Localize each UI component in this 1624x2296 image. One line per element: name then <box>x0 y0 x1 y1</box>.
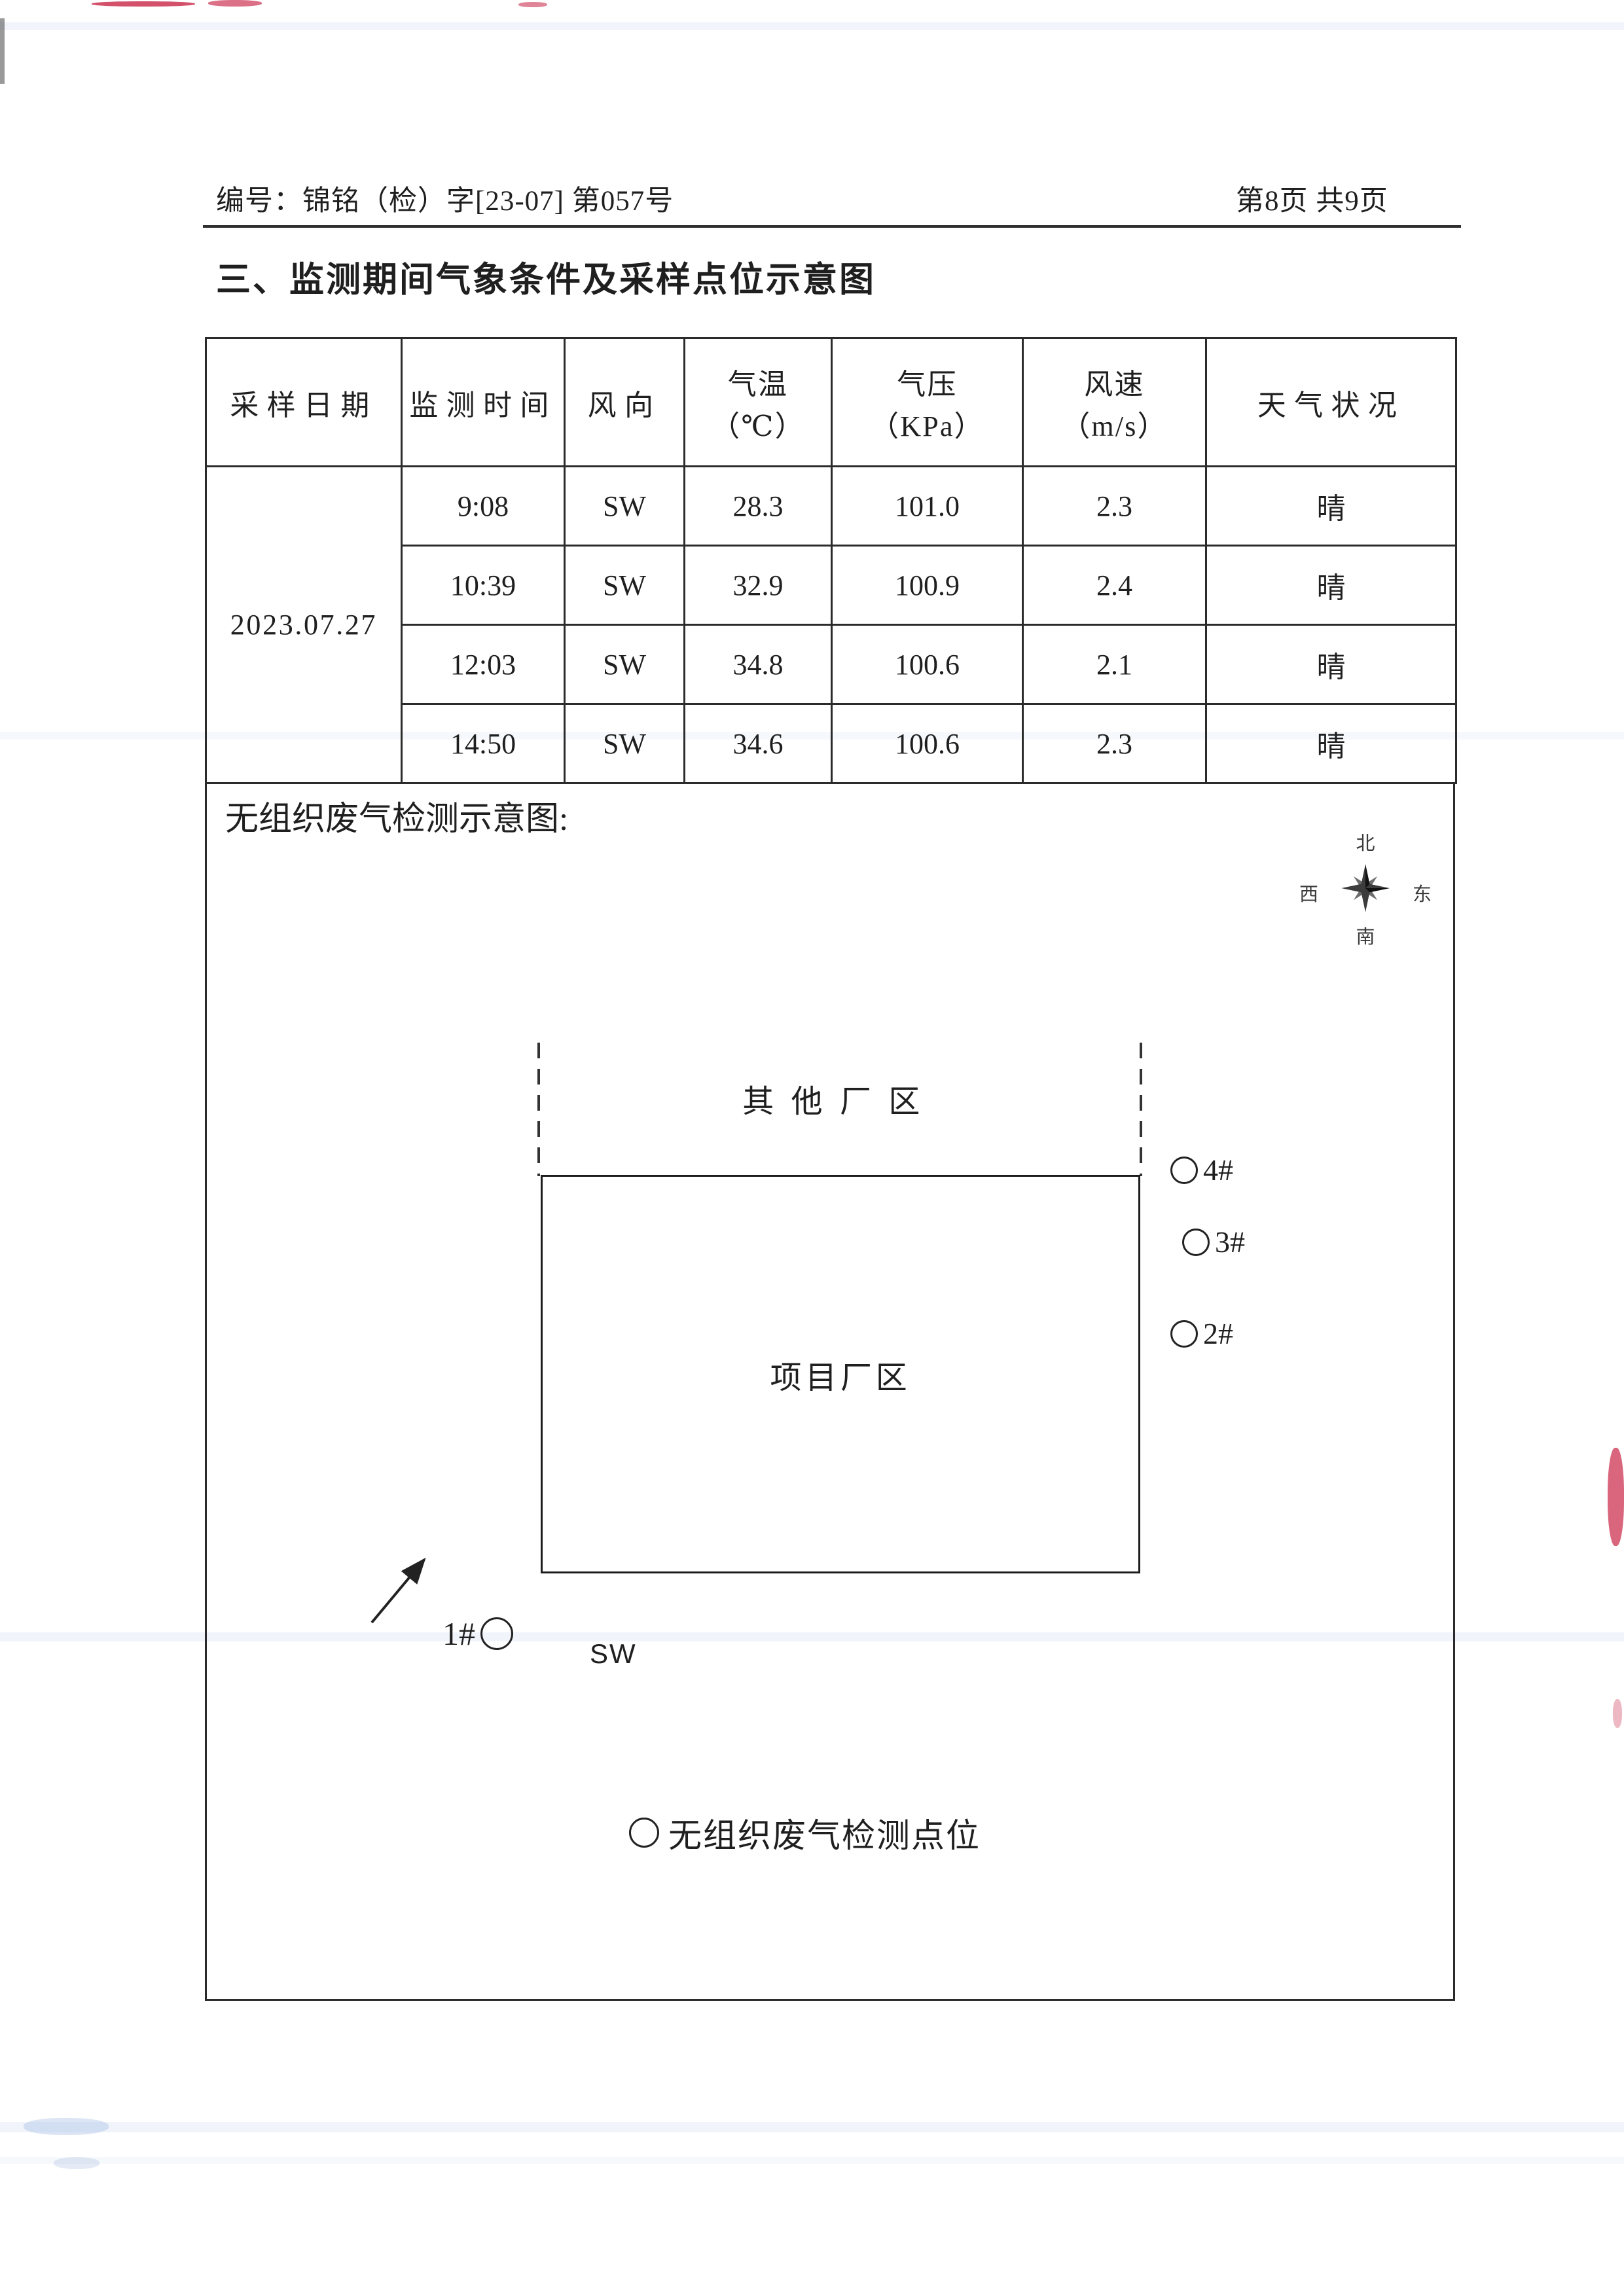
wind-cell: SW <box>565 625 685 704</box>
project-area-rect: 项目厂区 <box>541 1175 1140 1573</box>
legend-label: 无组织废气检测点位 <box>668 1808 981 1857</box>
sampling-point-circle-icon <box>1170 1157 1198 1184</box>
wind-cell: SW <box>565 467 685 546</box>
project-area-label: 项目厂区 <box>770 1352 911 1397</box>
speed-cell: 2.4 <box>1023 546 1206 625</box>
time-cell: 12:03 <box>402 625 565 704</box>
wind-cell: SW <box>565 546 685 625</box>
weather-cell: 晴 <box>1206 467 1456 546</box>
weather-cell: 晴 <box>1206 704 1456 783</box>
diagram-legend: 无组织废气检测点位 <box>629 1808 981 1857</box>
temp-cell: 34.6 <box>685 704 832 783</box>
sampling-point-circle-icon <box>480 1617 513 1650</box>
red-ink-mark <box>92 1 195 7</box>
temp-cell: 34.8 <box>685 625 832 704</box>
pressure-cell: 100.9 <box>832 546 1023 625</box>
speed-cell: 2.1 <box>1023 625 1206 704</box>
col-header-wind-speed: 风速 （m/s） <box>1023 338 1206 467</box>
section-title: 三、监测期间气象条件及采样点位示意图 <box>216 252 876 302</box>
wind-cell: SW <box>565 704 685 783</box>
scan-streak <box>0 2122 1624 2132</box>
edge-shadow-mark <box>0 18 5 84</box>
col-header-temperature: 气温 （℃） <box>685 338 832 467</box>
time-cell: 9:08 <box>402 467 565 546</box>
col-header-wind-direction: 风向 <box>565 338 685 467</box>
time-cell: 14:50 <box>402 704 565 783</box>
wind-direction-arrow <box>372 1560 424 1623</box>
sampling-point-label: 2# <box>1203 1316 1233 1351</box>
pressure-cell: 100.6 <box>832 704 1023 783</box>
scan-streak <box>0 22 1624 30</box>
sampling-point-label: 4# <box>1203 1153 1233 1187</box>
wind-direction-label: SW <box>590 1638 637 1670</box>
scan-streak <box>0 2157 1624 2164</box>
col-header-sample-date: 采样日期 <box>206 338 402 467</box>
other-area-label: 其他厂区 <box>539 1075 1141 1121</box>
table-header-row: 采样日期 监测时间 风向 气温 （℃） 气压 （KPa） 风速 （m/s） 天气… <box>206 338 1456 467</box>
temp-cell: 28.3 <box>685 467 832 546</box>
legend-circle-icon <box>629 1818 659 1848</box>
pressure-cell: 101.0 <box>832 467 1023 546</box>
scanned-report-page: 编号：锦铭（检）字[23-07] 第057号 第8页 共9页 三、监测期间气象条… <box>0 0 1624 2296</box>
weather-cell: 晴 <box>1206 625 1456 704</box>
document-number: 编号：锦铭（检）字[23-07] 第057号 <box>216 178 674 219</box>
page-indicator: 第8页 共9页 <box>1236 178 1388 219</box>
sampling-point-4: 4# <box>1170 1153 1233 1187</box>
pressure-cell: 100.6 <box>832 625 1023 704</box>
col-header-monitor-time: 监测时间 <box>402 338 565 467</box>
sampling-point-circle-icon <box>1170 1320 1198 1348</box>
speed-cell: 2.3 <box>1023 467 1206 546</box>
header-rule <box>203 225 1461 228</box>
red-ink-mark <box>208 0 262 7</box>
blue-ink-smudge <box>24 2118 109 2135</box>
col-header-pressure: 气压 （KPa） <box>832 338 1023 467</box>
red-ink-mark <box>518 2 547 7</box>
col-header-weather: 天气状况 <box>1206 338 1456 467</box>
red-ink-smudge <box>1608 1448 1624 1546</box>
speed-cell: 2.3 <box>1023 704 1206 783</box>
sampling-point-3: 3# <box>1182 1225 1245 1259</box>
weather-cell: 晴 <box>1206 546 1456 625</box>
blue-ink-smudge <box>54 2157 99 2169</box>
site-diagram-box: 无组织废气检测示意图: 北 南 西 东 <box>205 782 1455 2001</box>
time-cell: 10:39 <box>402 546 565 625</box>
sample-date-cell: 2023.07.27 <box>206 467 402 783</box>
red-ink-smudge <box>1613 1699 1622 1728</box>
sampling-point-circle-icon <box>1182 1229 1210 1256</box>
sampling-point-label: 1# <box>442 1615 475 1653</box>
sampling-point-1: 1# <box>442 1615 513 1653</box>
temp-cell: 32.9 <box>685 546 832 625</box>
sampling-point-2: 2# <box>1170 1316 1233 1351</box>
sampling-point-label: 3# <box>1215 1225 1245 1259</box>
weather-conditions-table: 采样日期 监测时间 风向 气温 （℃） 气压 （KPa） 风速 （m/s） 天气… <box>205 337 1457 784</box>
table-row: 2023.07.27 9:08 SW 28.3 101.0 2.3 晴 <box>206 467 1456 546</box>
